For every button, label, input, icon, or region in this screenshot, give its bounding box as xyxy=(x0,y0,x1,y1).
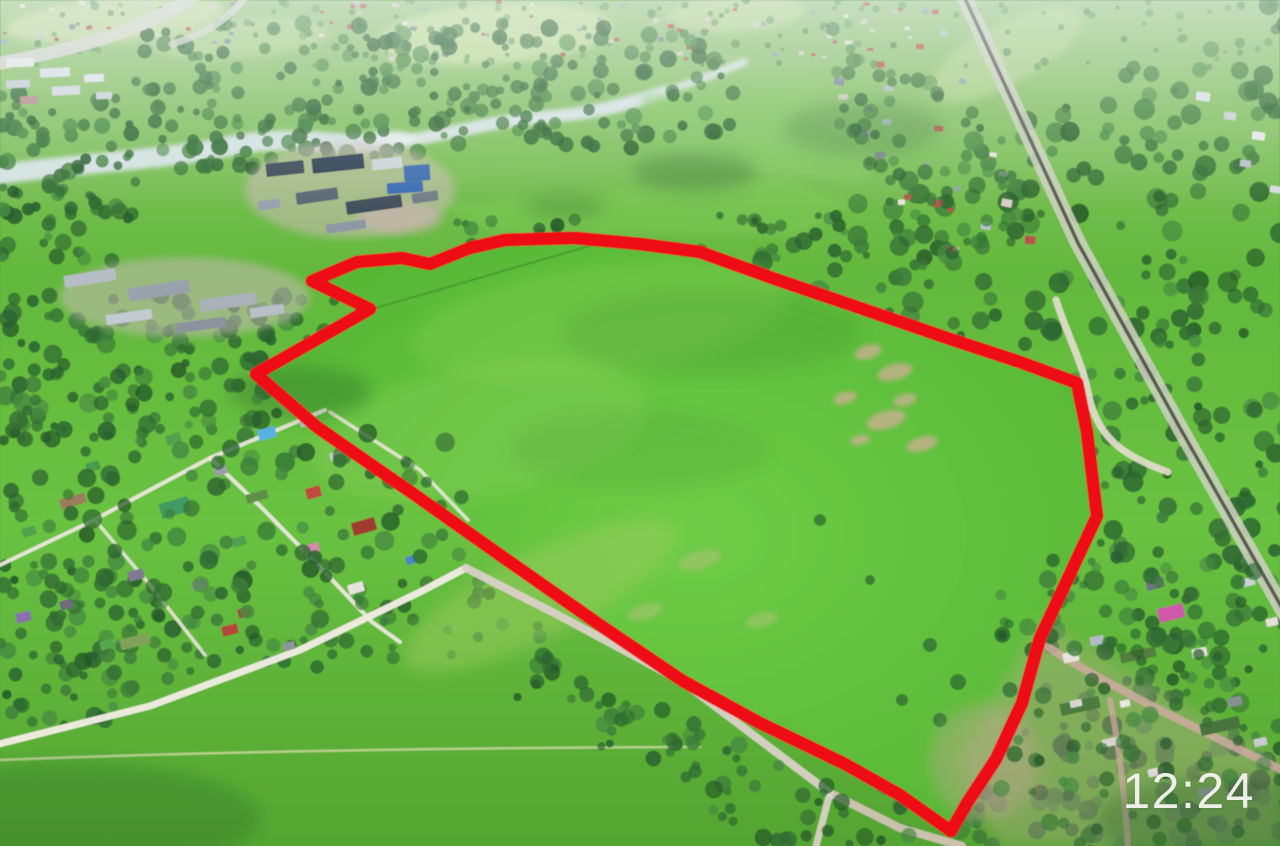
tree xyxy=(1126,397,1139,410)
tree xyxy=(1081,722,1091,732)
tree xyxy=(297,522,309,534)
tree xyxy=(392,504,403,515)
tree xyxy=(755,829,772,846)
tree xyxy=(1114,580,1129,595)
tree xyxy=(1169,697,1183,711)
tree xyxy=(126,624,135,633)
tree xyxy=(125,397,139,411)
tree xyxy=(27,716,38,727)
tree xyxy=(892,228,902,238)
tree xyxy=(1119,607,1137,625)
tree xyxy=(833,794,850,811)
tree xyxy=(67,392,78,403)
tree xyxy=(1067,751,1080,764)
tree xyxy=(1171,309,1189,327)
tree xyxy=(184,345,194,355)
tree xyxy=(1178,630,1196,648)
tree xyxy=(686,735,701,750)
tree xyxy=(1202,717,1213,728)
tree xyxy=(413,549,428,564)
tree xyxy=(1002,682,1017,697)
tree xyxy=(29,341,41,353)
tree xyxy=(60,685,71,696)
tree xyxy=(876,282,887,293)
tree xyxy=(1166,249,1177,260)
tree xyxy=(240,457,259,476)
bush xyxy=(814,514,826,526)
tree xyxy=(597,742,605,750)
tree xyxy=(1198,622,1216,640)
tree xyxy=(154,583,172,601)
tree xyxy=(41,684,52,695)
tree xyxy=(646,751,662,767)
tree xyxy=(236,646,245,655)
bush xyxy=(923,638,937,652)
tree xyxy=(43,520,57,534)
tree xyxy=(485,215,497,227)
tree xyxy=(1255,460,1263,468)
tree xyxy=(1130,644,1144,658)
tree xyxy=(453,218,461,226)
tree xyxy=(876,835,886,845)
tree xyxy=(1162,221,1183,242)
tree xyxy=(355,596,369,610)
tree xyxy=(43,430,60,447)
tree xyxy=(231,577,247,593)
aerial-photo-canvas xyxy=(0,0,1280,846)
tree xyxy=(135,437,143,445)
tree xyxy=(199,551,218,570)
tree xyxy=(421,533,437,549)
tree xyxy=(189,435,203,449)
tree xyxy=(737,214,748,225)
tree xyxy=(1006,237,1015,246)
tree xyxy=(1106,636,1118,648)
tree xyxy=(709,805,719,815)
tree xyxy=(436,433,455,452)
tree xyxy=(1239,724,1247,732)
tree xyxy=(181,359,189,367)
tree xyxy=(1198,420,1213,435)
tree xyxy=(1041,814,1059,832)
tree xyxy=(818,778,834,794)
tree xyxy=(177,344,186,353)
tree xyxy=(654,702,670,718)
tree xyxy=(736,765,747,776)
tree xyxy=(1183,689,1191,697)
tree xyxy=(398,579,408,589)
tree xyxy=(165,392,174,401)
tree xyxy=(44,312,53,321)
tree xyxy=(595,701,603,709)
tree xyxy=(0,237,16,254)
tree xyxy=(211,357,229,375)
tree xyxy=(246,560,256,570)
tree xyxy=(40,553,57,570)
tree xyxy=(53,654,64,665)
tree xyxy=(1186,376,1202,392)
tree xyxy=(1160,738,1172,750)
tree xyxy=(64,506,79,521)
tree xyxy=(107,665,123,681)
tree xyxy=(358,424,377,443)
tree xyxy=(1262,392,1280,410)
tree xyxy=(1152,546,1164,558)
tree xyxy=(29,651,38,660)
tree xyxy=(607,726,617,736)
tree xyxy=(5,706,19,720)
tree xyxy=(716,212,724,220)
tree xyxy=(183,500,200,517)
tree xyxy=(240,415,253,428)
tree xyxy=(107,688,117,698)
tree xyxy=(327,649,337,659)
tree xyxy=(1250,299,1265,314)
terrain-patch xyxy=(930,704,1040,820)
tree xyxy=(765,223,777,235)
tree xyxy=(220,536,233,549)
tree xyxy=(729,817,738,826)
tree xyxy=(766,243,778,255)
tree xyxy=(1170,589,1180,599)
tree xyxy=(186,470,198,482)
tree xyxy=(972,312,990,330)
tree xyxy=(10,576,19,585)
tree xyxy=(8,293,21,306)
tree xyxy=(297,443,315,461)
tree xyxy=(183,385,197,399)
tree xyxy=(361,546,375,560)
tree xyxy=(606,740,614,748)
tree xyxy=(893,267,912,286)
tree xyxy=(185,420,193,428)
tree xyxy=(276,544,288,556)
tree xyxy=(311,610,330,629)
tree xyxy=(917,214,930,227)
tree xyxy=(9,668,23,682)
tree xyxy=(1135,676,1145,686)
tree xyxy=(1190,502,1203,515)
tree xyxy=(82,555,94,567)
tree xyxy=(421,477,432,488)
tree xyxy=(81,446,91,456)
tree xyxy=(997,630,1007,640)
tree xyxy=(1193,649,1204,660)
tree xyxy=(1099,789,1109,799)
tree xyxy=(116,581,133,598)
tree xyxy=(30,394,41,405)
tree xyxy=(815,212,822,219)
tree xyxy=(155,424,165,434)
tree xyxy=(1013,735,1023,745)
tree xyxy=(96,574,108,586)
tree xyxy=(1111,466,1123,478)
tree xyxy=(1218,272,1239,293)
village-house xyxy=(1024,235,1035,244)
tree xyxy=(320,570,333,583)
tree xyxy=(718,812,727,821)
tree xyxy=(917,260,928,271)
tree xyxy=(1185,587,1200,602)
tree xyxy=(1025,290,1046,311)
tree xyxy=(1212,651,1222,661)
tree xyxy=(1226,609,1244,627)
tree xyxy=(1159,263,1176,280)
tree xyxy=(915,225,934,244)
tree xyxy=(136,384,153,401)
tree xyxy=(266,638,280,652)
tree xyxy=(550,218,564,232)
tree xyxy=(183,561,194,572)
tree xyxy=(1110,551,1123,564)
tree xyxy=(1256,757,1271,772)
terrain-patch xyxy=(510,410,770,490)
tree xyxy=(42,288,58,304)
tree xyxy=(215,587,228,600)
tree xyxy=(109,702,119,712)
tree xyxy=(73,567,89,583)
tree xyxy=(1035,687,1052,704)
tree xyxy=(123,213,134,224)
tree xyxy=(1239,328,1249,338)
tree xyxy=(1028,788,1036,796)
tree xyxy=(240,605,254,619)
tree xyxy=(686,716,701,731)
tree xyxy=(1258,467,1268,477)
tree xyxy=(15,509,28,522)
tree xyxy=(1204,678,1215,689)
tree xyxy=(107,544,122,559)
tree xyxy=(1004,619,1014,629)
tree xyxy=(337,529,349,541)
tree xyxy=(328,474,344,490)
tree xyxy=(87,487,104,504)
tree xyxy=(1148,664,1159,675)
tree xyxy=(3,483,19,499)
tree xyxy=(751,217,759,225)
tree xyxy=(245,625,260,640)
tree xyxy=(827,262,843,278)
tree xyxy=(193,576,210,593)
tree xyxy=(1165,340,1174,349)
tree xyxy=(31,420,43,432)
tree xyxy=(115,363,131,379)
tree xyxy=(454,490,468,504)
tree xyxy=(1259,644,1268,653)
tree xyxy=(310,660,324,674)
tree xyxy=(360,645,373,658)
tree xyxy=(94,396,109,411)
tree xyxy=(662,735,671,744)
tree xyxy=(172,441,189,458)
tree xyxy=(1243,495,1256,508)
tree xyxy=(191,606,205,620)
tree xyxy=(28,363,41,376)
tree xyxy=(620,709,635,724)
tree xyxy=(854,239,869,254)
tree xyxy=(1160,562,1172,574)
tree xyxy=(42,217,56,231)
tree xyxy=(1252,606,1268,622)
tree xyxy=(1096,743,1108,755)
tree xyxy=(1245,563,1262,580)
tree xyxy=(1136,306,1150,320)
tree xyxy=(59,583,74,598)
tree xyxy=(1145,616,1160,631)
tree xyxy=(689,765,702,778)
tree xyxy=(1233,736,1243,746)
tree xyxy=(1167,673,1180,686)
tree xyxy=(55,234,72,251)
tree xyxy=(105,585,118,598)
tree xyxy=(1194,402,1203,411)
tree xyxy=(795,787,811,803)
tree xyxy=(44,574,60,590)
tree xyxy=(531,679,541,689)
tree xyxy=(901,828,916,843)
tree xyxy=(981,214,993,226)
tree xyxy=(732,754,740,762)
tree xyxy=(167,527,186,546)
tree xyxy=(1199,557,1214,572)
tree xyxy=(946,246,960,260)
tree xyxy=(1116,734,1131,749)
tree xyxy=(374,531,394,551)
tree xyxy=(275,467,288,480)
tree xyxy=(975,273,993,291)
tree xyxy=(128,450,141,463)
tree xyxy=(66,661,82,677)
tree xyxy=(601,692,616,707)
tree xyxy=(27,295,39,307)
tree xyxy=(957,223,971,237)
bush xyxy=(950,674,966,690)
tree xyxy=(211,614,224,627)
tree xyxy=(1137,496,1146,505)
distance-haze xyxy=(0,0,1280,212)
tree xyxy=(315,599,324,608)
tree xyxy=(436,529,449,542)
tree xyxy=(9,411,28,430)
bush xyxy=(896,694,908,706)
tree xyxy=(1098,682,1111,695)
tree xyxy=(1058,777,1068,787)
tree xyxy=(3,358,15,370)
tree xyxy=(1034,755,1045,766)
tree xyxy=(17,434,26,443)
tree xyxy=(78,469,97,488)
tree xyxy=(989,308,1002,321)
tree xyxy=(207,477,226,496)
tree xyxy=(902,291,923,312)
tree xyxy=(1179,256,1188,265)
tree xyxy=(1006,746,1022,762)
tree xyxy=(1235,596,1247,608)
tree xyxy=(1254,431,1275,452)
tree xyxy=(773,760,784,771)
tree xyxy=(28,377,38,387)
tree xyxy=(1156,511,1168,523)
tree xyxy=(749,780,761,792)
photo-scene xyxy=(0,0,1280,846)
tree xyxy=(101,465,120,484)
tree xyxy=(1103,401,1123,421)
tree xyxy=(303,586,315,598)
tree xyxy=(1058,818,1069,829)
tree xyxy=(400,456,411,467)
tree xyxy=(1140,396,1149,405)
tree xyxy=(39,239,48,248)
tree xyxy=(828,244,842,258)
tree xyxy=(705,780,723,798)
tree xyxy=(1114,368,1126,380)
tree xyxy=(1088,558,1096,566)
tree xyxy=(151,608,165,622)
tree xyxy=(1046,554,1060,568)
tree xyxy=(95,598,106,609)
tree xyxy=(890,236,910,256)
tree xyxy=(308,550,322,564)
tree xyxy=(82,509,102,529)
tree xyxy=(32,469,49,486)
tree xyxy=(1141,270,1151,280)
tree xyxy=(1019,618,1036,635)
tree xyxy=(1103,520,1123,540)
tree xyxy=(108,605,124,621)
tree xyxy=(164,509,175,520)
tree xyxy=(1141,706,1158,723)
tree xyxy=(1086,688,1095,697)
bush xyxy=(865,575,875,585)
tree xyxy=(1153,577,1164,588)
tree xyxy=(63,489,74,500)
tree xyxy=(1099,605,1112,618)
tree xyxy=(161,672,174,685)
tree xyxy=(1099,771,1114,786)
timestamp-label: 12:24 xyxy=(1122,766,1255,816)
tree xyxy=(795,232,813,250)
tree xyxy=(1116,643,1126,653)
tree xyxy=(228,335,242,349)
tree xyxy=(40,590,58,608)
tree xyxy=(801,830,812,841)
tree xyxy=(672,739,683,750)
tree xyxy=(1018,337,1032,351)
tree xyxy=(924,279,934,289)
tree xyxy=(1246,248,1265,267)
tree xyxy=(164,343,177,356)
tree xyxy=(1247,402,1264,419)
tree xyxy=(135,368,153,386)
tree xyxy=(117,520,137,540)
tree xyxy=(1188,334,1201,347)
tree xyxy=(141,539,154,552)
tree xyxy=(64,626,76,638)
tree xyxy=(15,628,27,640)
tree xyxy=(55,610,67,622)
tree xyxy=(50,641,63,654)
tree xyxy=(0,310,18,328)
tree xyxy=(1039,570,1057,588)
tree xyxy=(387,651,400,664)
tree xyxy=(70,693,78,701)
tree xyxy=(722,746,731,755)
tree xyxy=(186,667,194,675)
tree xyxy=(1234,562,1242,570)
tree xyxy=(57,358,70,371)
tree xyxy=(995,590,1006,601)
tree xyxy=(1213,407,1230,424)
